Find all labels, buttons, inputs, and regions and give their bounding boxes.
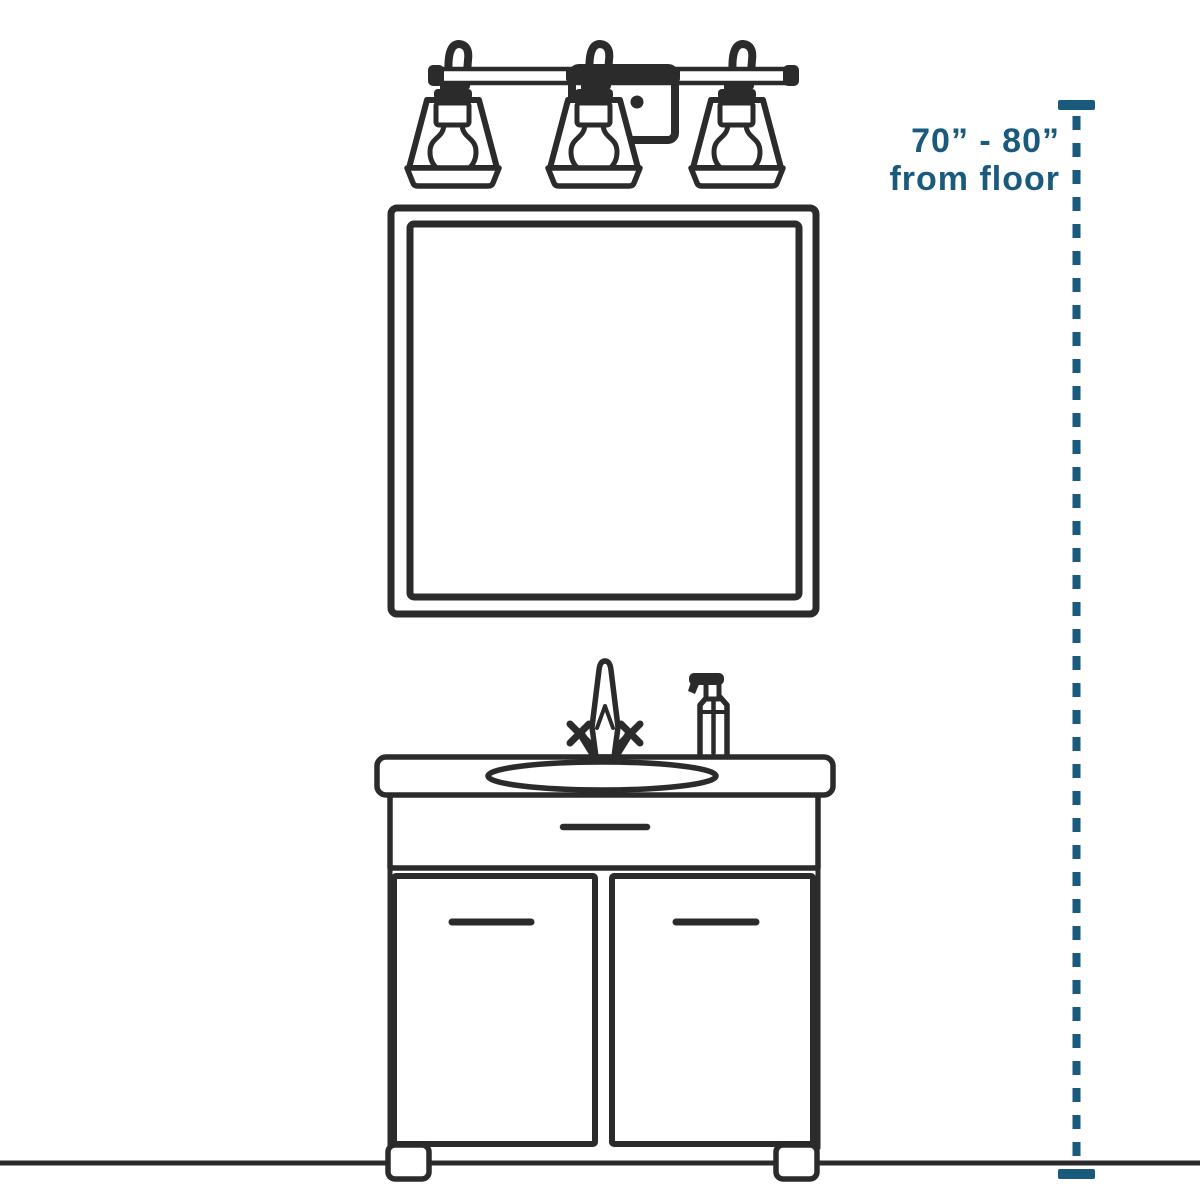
left-cabinet-door [394, 876, 595, 1144]
right-light [691, 83, 783, 186]
bar-right-endcap [783, 65, 799, 86]
measure-bottom-cap [1058, 1169, 1095, 1179]
measure-top-cap [1058, 100, 1095, 110]
vanity-light-fixture [407, 44, 799, 186]
cabinet-right-foot [776, 1145, 817, 1179]
sink-basin [488, 762, 716, 790]
scene-svg: 70” - 80” from floor [0, 0, 1200, 1200]
mirror [391, 208, 816, 614]
faucet-left-cross-handle [570, 724, 589, 743]
soap-pump-icon [688, 673, 727, 760]
height-measurement-line: 70” - 80” from floor [889, 100, 1095, 1179]
cabinet-left-foot [388, 1145, 429, 1179]
backplate-rail [566, 67, 680, 82]
faucet-icon [570, 661, 640, 757]
measurement-label-line1: 70” - 80” [911, 122, 1060, 160]
right-cabinet-door [612, 876, 813, 1144]
bar-left-endcap [428, 65, 444, 86]
soap-pump-nozzle [688, 682, 700, 694]
vanity-cabinet [377, 757, 833, 1148]
left-light [407, 83, 499, 186]
measurement-label-line2: from floor [889, 160, 1060, 198]
mirror-outer-frame [391, 208, 816, 614]
faucet-right-cross-handle [621, 724, 640, 743]
backplate-screw [631, 96, 644, 109]
